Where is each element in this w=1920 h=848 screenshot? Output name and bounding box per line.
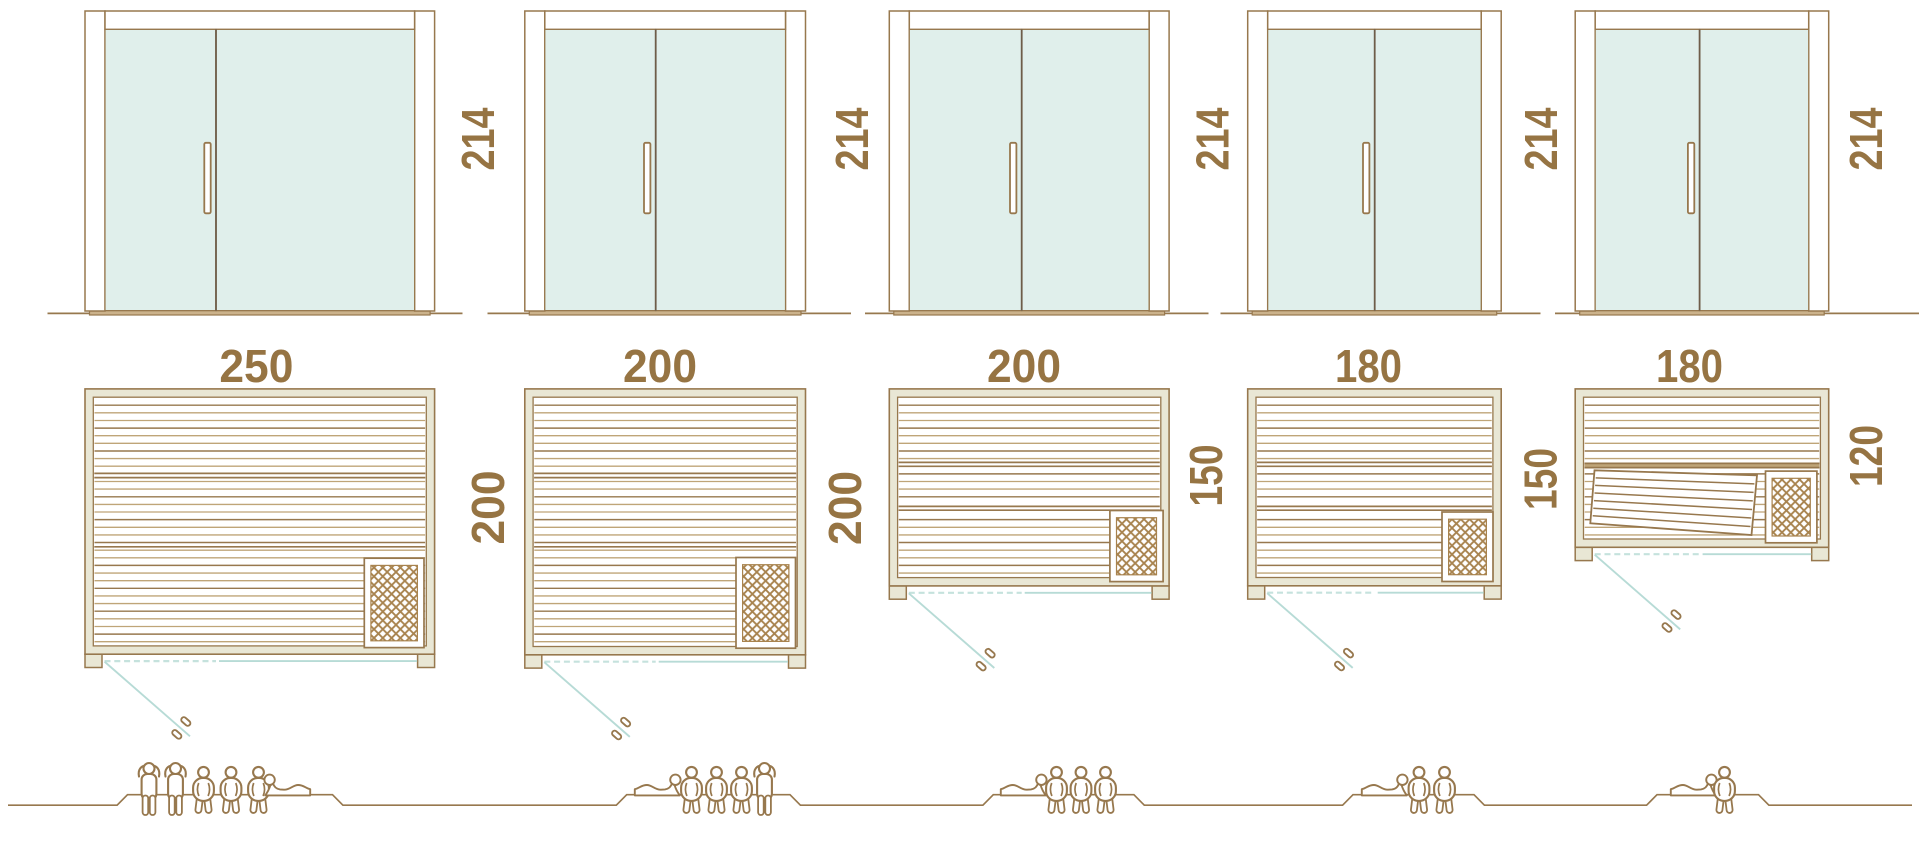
svg-text:200: 200 xyxy=(623,340,697,392)
svg-text:214: 214 xyxy=(1186,107,1238,170)
svg-text:214: 214 xyxy=(452,107,504,170)
svg-text:180: 180 xyxy=(1656,340,1723,392)
svg-text:214: 214 xyxy=(1840,107,1892,170)
svg-text:200: 200 xyxy=(462,471,514,545)
svg-text:180: 180 xyxy=(1335,340,1402,392)
svg-text:200: 200 xyxy=(987,340,1061,392)
svg-text:214: 214 xyxy=(1515,107,1567,170)
svg-text:214: 214 xyxy=(826,107,878,170)
svg-text:120: 120 xyxy=(1840,425,1892,487)
svg-text:250: 250 xyxy=(219,340,293,392)
svg-text:150: 150 xyxy=(1515,448,1567,510)
svg-text:200: 200 xyxy=(819,471,871,545)
svg-text:150: 150 xyxy=(1180,445,1232,507)
